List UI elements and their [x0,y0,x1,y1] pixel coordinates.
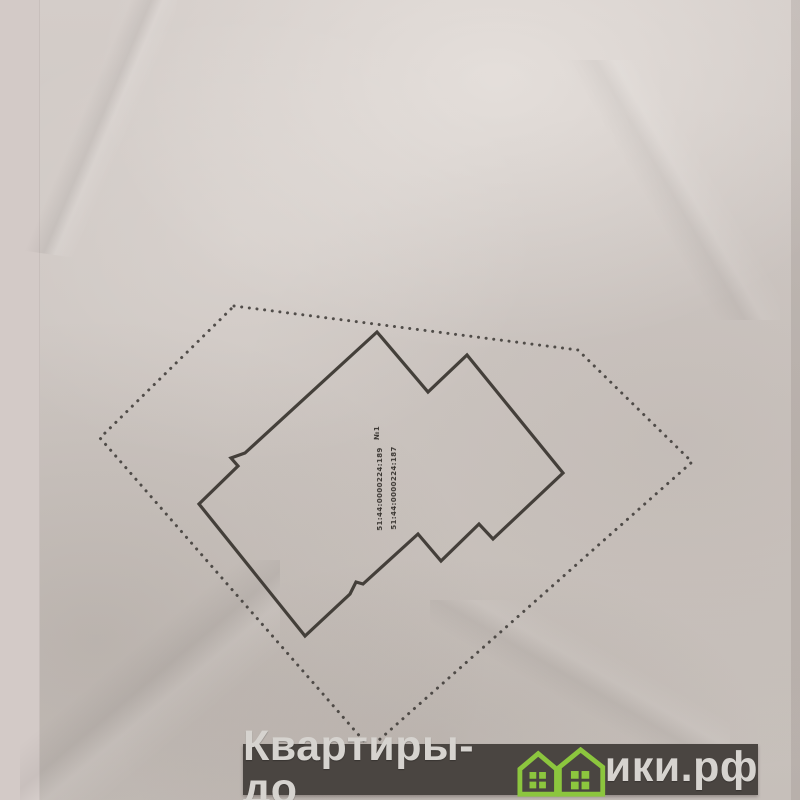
cadastral-number-label-1: 51:44:0000224:189 [376,447,384,530]
watermark-text-left: Квартиры-до [243,725,518,800]
cadastral-number-label-2: 51:44:0000224:187 [390,446,398,529]
plan-point-label: №1 [373,426,381,440]
site-plan-drawing [0,0,800,800]
watermark-text-right: ики.рф [605,746,758,789]
watermark-bar: Квартиры-до ики.рф [243,744,758,795]
green-houses-icon [517,747,606,797]
photographed-site-plan: №1 51:44:0000224:189 51:44:0000224:187 К… [0,0,800,800]
house-icon-right [560,749,603,793]
house-icon-left [520,753,557,793]
